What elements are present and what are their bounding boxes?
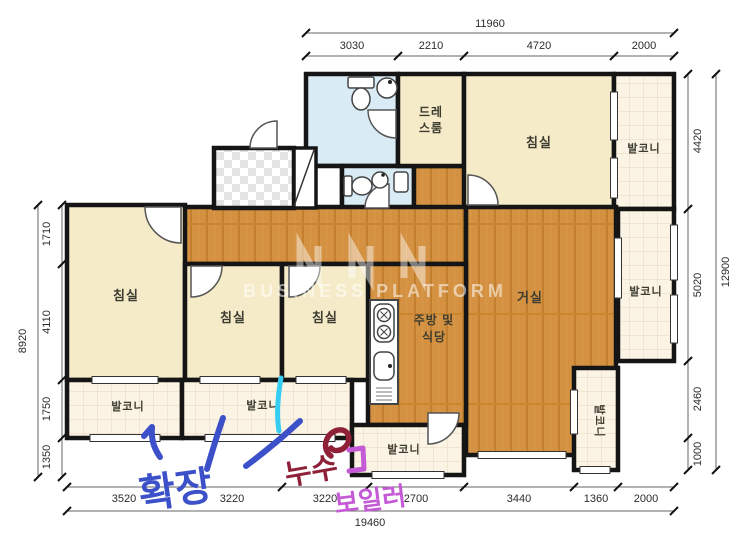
label-dress-1: 드레	[419, 104, 443, 119]
annotation-expansion: 확장	[136, 464, 215, 518]
dim-bottom-1: 3220	[220, 493, 244, 505]
label-bedroom-top: 침실	[526, 135, 552, 150]
toilet-tank-main	[348, 77, 374, 88]
label-bedroom-mid: 침실	[220, 310, 246, 325]
dim-bottom-total: 19460	[355, 517, 386, 529]
label-balcony-right: 발코니	[629, 284, 662, 298]
dim-top-1: 2210	[419, 40, 443, 52]
label-balcony-c: 발코니	[387, 442, 420, 456]
label-kitchen-2: 식당	[422, 329, 446, 344]
door-entrance	[250, 121, 277, 148]
sink-main-faucet	[388, 80, 392, 84]
shoe-closet	[294, 148, 316, 208]
dim-bottom-3: 2700	[404, 493, 428, 505]
toilet-bowl-main	[352, 88, 370, 110]
dim-bottom-4: 3440	[507, 493, 531, 505]
label-balcony-d: 발코니	[593, 404, 607, 437]
dim-left-3: 1350	[41, 445, 53, 469]
dim-right-2: 2460	[692, 387, 704, 411]
floorplan-canvas: BUSINESS PLATFORM 침실 발코니 드레 스룸 침실 침실 침실 …	[0, 0, 750, 549]
toilet-bowl-second	[352, 177, 372, 195]
dim-left-2: 1750	[41, 397, 53, 421]
label-bedroom-small: 침실	[312, 310, 338, 325]
dim-top-total: 11960	[475, 18, 505, 30]
dim-right-0: 4420	[692, 129, 704, 153]
label-bedroom-left: 침실	[113, 288, 139, 303]
dim-bottom-0: 3520	[112, 493, 136, 505]
sink-main	[377, 78, 397, 98]
floorplan-svg: BUSINESS PLATFORM 침실 발코니 드레 스룸 침실 침실 침실 …	[0, 0, 750, 549]
dim-top-3: 2000	[632, 40, 656, 52]
entrance	[214, 148, 294, 208]
label-living: 거실	[517, 290, 543, 305]
room-balcony-top	[614, 74, 674, 209]
dim-top-0: 3030	[340, 40, 364, 52]
dim-bottom-5: 1360	[584, 493, 608, 505]
dim-right-1: 5020	[692, 273, 704, 297]
room-balcony-right	[618, 209, 674, 361]
label-balcony-a: 발코니	[111, 399, 144, 413]
label-dress-2: 스룸	[419, 120, 443, 135]
dim-bottom-6: 2000	[634, 493, 658, 505]
label-balcony-b: 발코니	[246, 398, 279, 412]
label-kitchen-1: 주방 및	[414, 312, 454, 327]
watermark-text: BUSINESS PLATFORM	[243, 281, 507, 301]
dim-right-3: 1000	[692, 442, 704, 466]
dim-left-0: 1710	[41, 222, 53, 246]
dim-left-total: 8920	[17, 329, 29, 353]
sink-second	[372, 172, 388, 188]
dim-right-total: 12900	[720, 257, 732, 288]
hall-upper	[414, 166, 466, 211]
label-balcony-top: 발코니	[627, 141, 660, 155]
annotation-leak: 누수	[282, 452, 340, 493]
dim-left-1: 4110	[41, 310, 53, 334]
room-dressroom	[398, 74, 464, 166]
bidet-second	[394, 172, 408, 192]
dim-top-2: 4720	[527, 40, 551, 52]
toilet-tank-second	[344, 176, 352, 196]
